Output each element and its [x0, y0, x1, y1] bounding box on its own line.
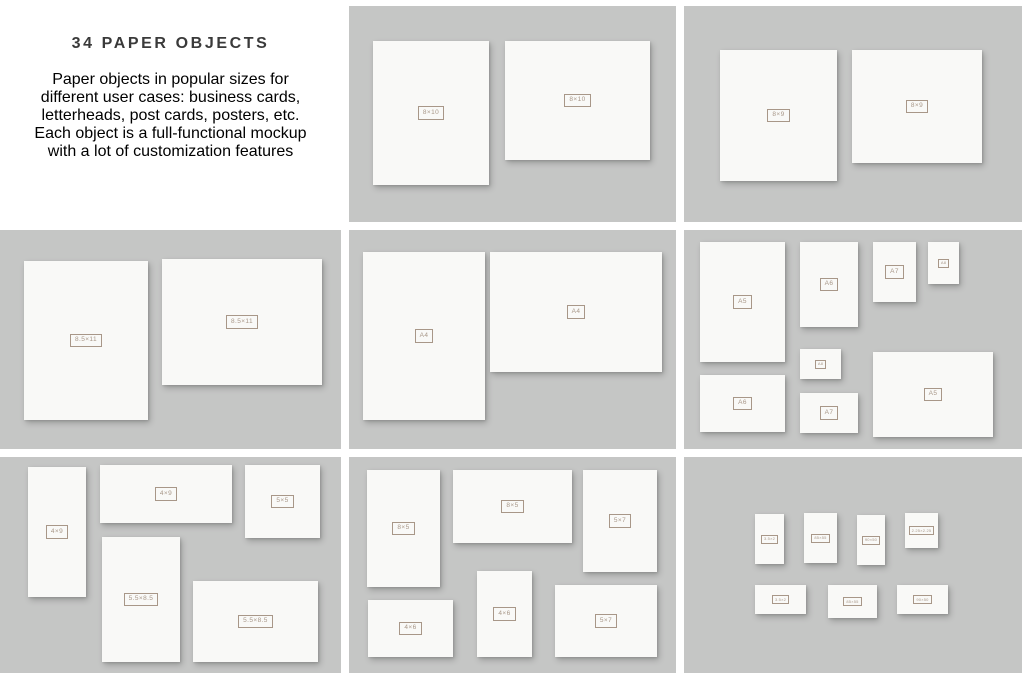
- paper-size-label: A8: [815, 360, 826, 369]
- paper-mockup: A5: [700, 242, 785, 362]
- paper-mockup: A6: [800, 242, 858, 327]
- paper-size-label: 8×10: [564, 94, 590, 108]
- panel-8x9: 8×98×9: [684, 6, 1022, 222]
- page-title: 34 PAPER OBJECTS: [72, 35, 270, 53]
- paper-size-label: A8: [938, 259, 949, 268]
- paper-size-label: 8×9: [767, 109, 789, 123]
- paper-size-label: 85×55: [843, 597, 861, 606]
- paper-size-label: 5.5×8.5: [124, 593, 159, 607]
- paper-mockup: A5: [873, 352, 993, 437]
- paper-mockup: 8×9: [720, 50, 837, 181]
- paper-objects-showcase: 34 PAPER OBJECTS Paper objects in popula…: [0, 0, 1024, 681]
- paper-mockup: A7: [800, 393, 858, 433]
- paper-mockup: 8×10: [373, 41, 489, 185]
- paper-mockup: 5×7: [555, 585, 657, 657]
- paper-mockup: 4×9: [28, 467, 86, 597]
- paper-size-label: A6: [733, 397, 752, 411]
- paper-mockup: 3.5×2: [755, 514, 784, 564]
- panel-8x10: 8×108×10: [349, 6, 676, 222]
- paper-mockup: 90×50: [897, 585, 948, 614]
- intro-line: Paper objects in popular sizes for: [52, 71, 289, 89]
- paper-mockup: A8: [928, 242, 959, 284]
- paper-mockup: 2.25×2.25: [905, 513, 938, 548]
- paper-size-label: 90×50: [862, 536, 880, 545]
- paper-size-label: 8×9: [906, 100, 928, 114]
- paper-size-label: 8.5×11: [226, 315, 258, 329]
- paper-mockup: 85×55: [804, 513, 837, 563]
- intro-panel: 34 PAPER OBJECTS Paper objects in popula…: [0, 6, 341, 222]
- paper-mockup: A8: [800, 349, 841, 379]
- panel-4x9-5x5: 4×94×95×55.5×8.55.5×8.5: [0, 457, 341, 673]
- panel-business-cards: 3.5×285×5590×502.25×2.253.5×285×5590×50: [684, 457, 1022, 673]
- paper-mockup: 8.5×11: [24, 261, 148, 420]
- intro-line: different user cases: business cards,: [41, 89, 300, 107]
- intro-line: Each object is a full-functional mockup: [34, 125, 306, 143]
- paper-size-label: A5: [733, 295, 752, 309]
- paper-mockup: 8×5: [453, 470, 572, 543]
- paper-size-label: A4: [567, 305, 586, 319]
- paper-mockup: 4×9: [100, 465, 232, 523]
- paper-mockup: 5.5×8.5: [193, 581, 318, 662]
- paper-size-label: 3.5×2: [761, 535, 778, 544]
- paper-size-label: 5×5: [271, 495, 293, 509]
- paper-mockup: 5.5×8.5: [102, 537, 180, 662]
- paper-size-label: 4×6: [399, 622, 421, 636]
- panel-a4: A4A4: [349, 230, 676, 449]
- paper-size-label: 4×9: [155, 487, 177, 501]
- paper-size-label: A7: [885, 265, 904, 279]
- paper-mockup: A4: [363, 252, 485, 420]
- paper-mockup: 8×9: [852, 50, 982, 163]
- paper-size-label: 4×9: [46, 525, 68, 539]
- intro-line: letterheads, post cards, posters, etc.: [42, 107, 300, 125]
- paper-mockup: 85×55: [828, 585, 877, 618]
- paper-size-label: 5×7: [609, 514, 631, 528]
- paper-mockup: 4×6: [368, 600, 453, 657]
- paper-size-label: 85×55: [811, 534, 829, 543]
- paper-mockup: 5×5: [245, 465, 320, 538]
- paper-size-label: 8×5: [501, 500, 523, 514]
- panel-8.5x11: 8.5×118.5×11: [0, 230, 341, 449]
- paper-size-label: 8.5×11: [70, 334, 102, 348]
- paper-mockup: 8×10: [505, 41, 650, 160]
- paper-mockup: 5×7: [583, 470, 657, 572]
- panel-a5-a8: A5A6A7A8A8A6A7A5: [684, 230, 1022, 449]
- paper-size-label: A6: [820, 278, 839, 292]
- paper-size-label: 4×6: [493, 607, 515, 621]
- paper-size-label: A4: [415, 329, 434, 343]
- paper-mockup: 3.5×2: [755, 585, 806, 614]
- paper-size-label: 90×50: [913, 595, 931, 604]
- paper-mockup: 90×50: [857, 515, 885, 565]
- panel-8x5-5x7-4x6: 8×58×55×74×64×65×7: [349, 457, 676, 673]
- paper-size-label: 2.25×2.25: [909, 526, 935, 535]
- paper-mockup: A7: [873, 242, 916, 302]
- paper-mockup: A6: [700, 375, 785, 432]
- intro-line: with a lot of customization features: [48, 143, 293, 161]
- paper-mockup: 8×5: [367, 470, 440, 587]
- paper-size-label: 8×5: [392, 522, 414, 536]
- paper-size-label: A7: [820, 406, 839, 420]
- paper-size-label: A5: [924, 388, 943, 402]
- paper-size-label: 8×10: [418, 106, 444, 120]
- paper-mockup: 4×6: [477, 571, 532, 657]
- paper-size-label: 5.5×8.5: [238, 615, 273, 629]
- paper-mockup: A4: [490, 252, 662, 372]
- paper-mockup: 8.5×11: [162, 259, 322, 385]
- paper-size-label: 5×7: [595, 614, 617, 628]
- paper-size-label: 3.5×2: [772, 595, 789, 604]
